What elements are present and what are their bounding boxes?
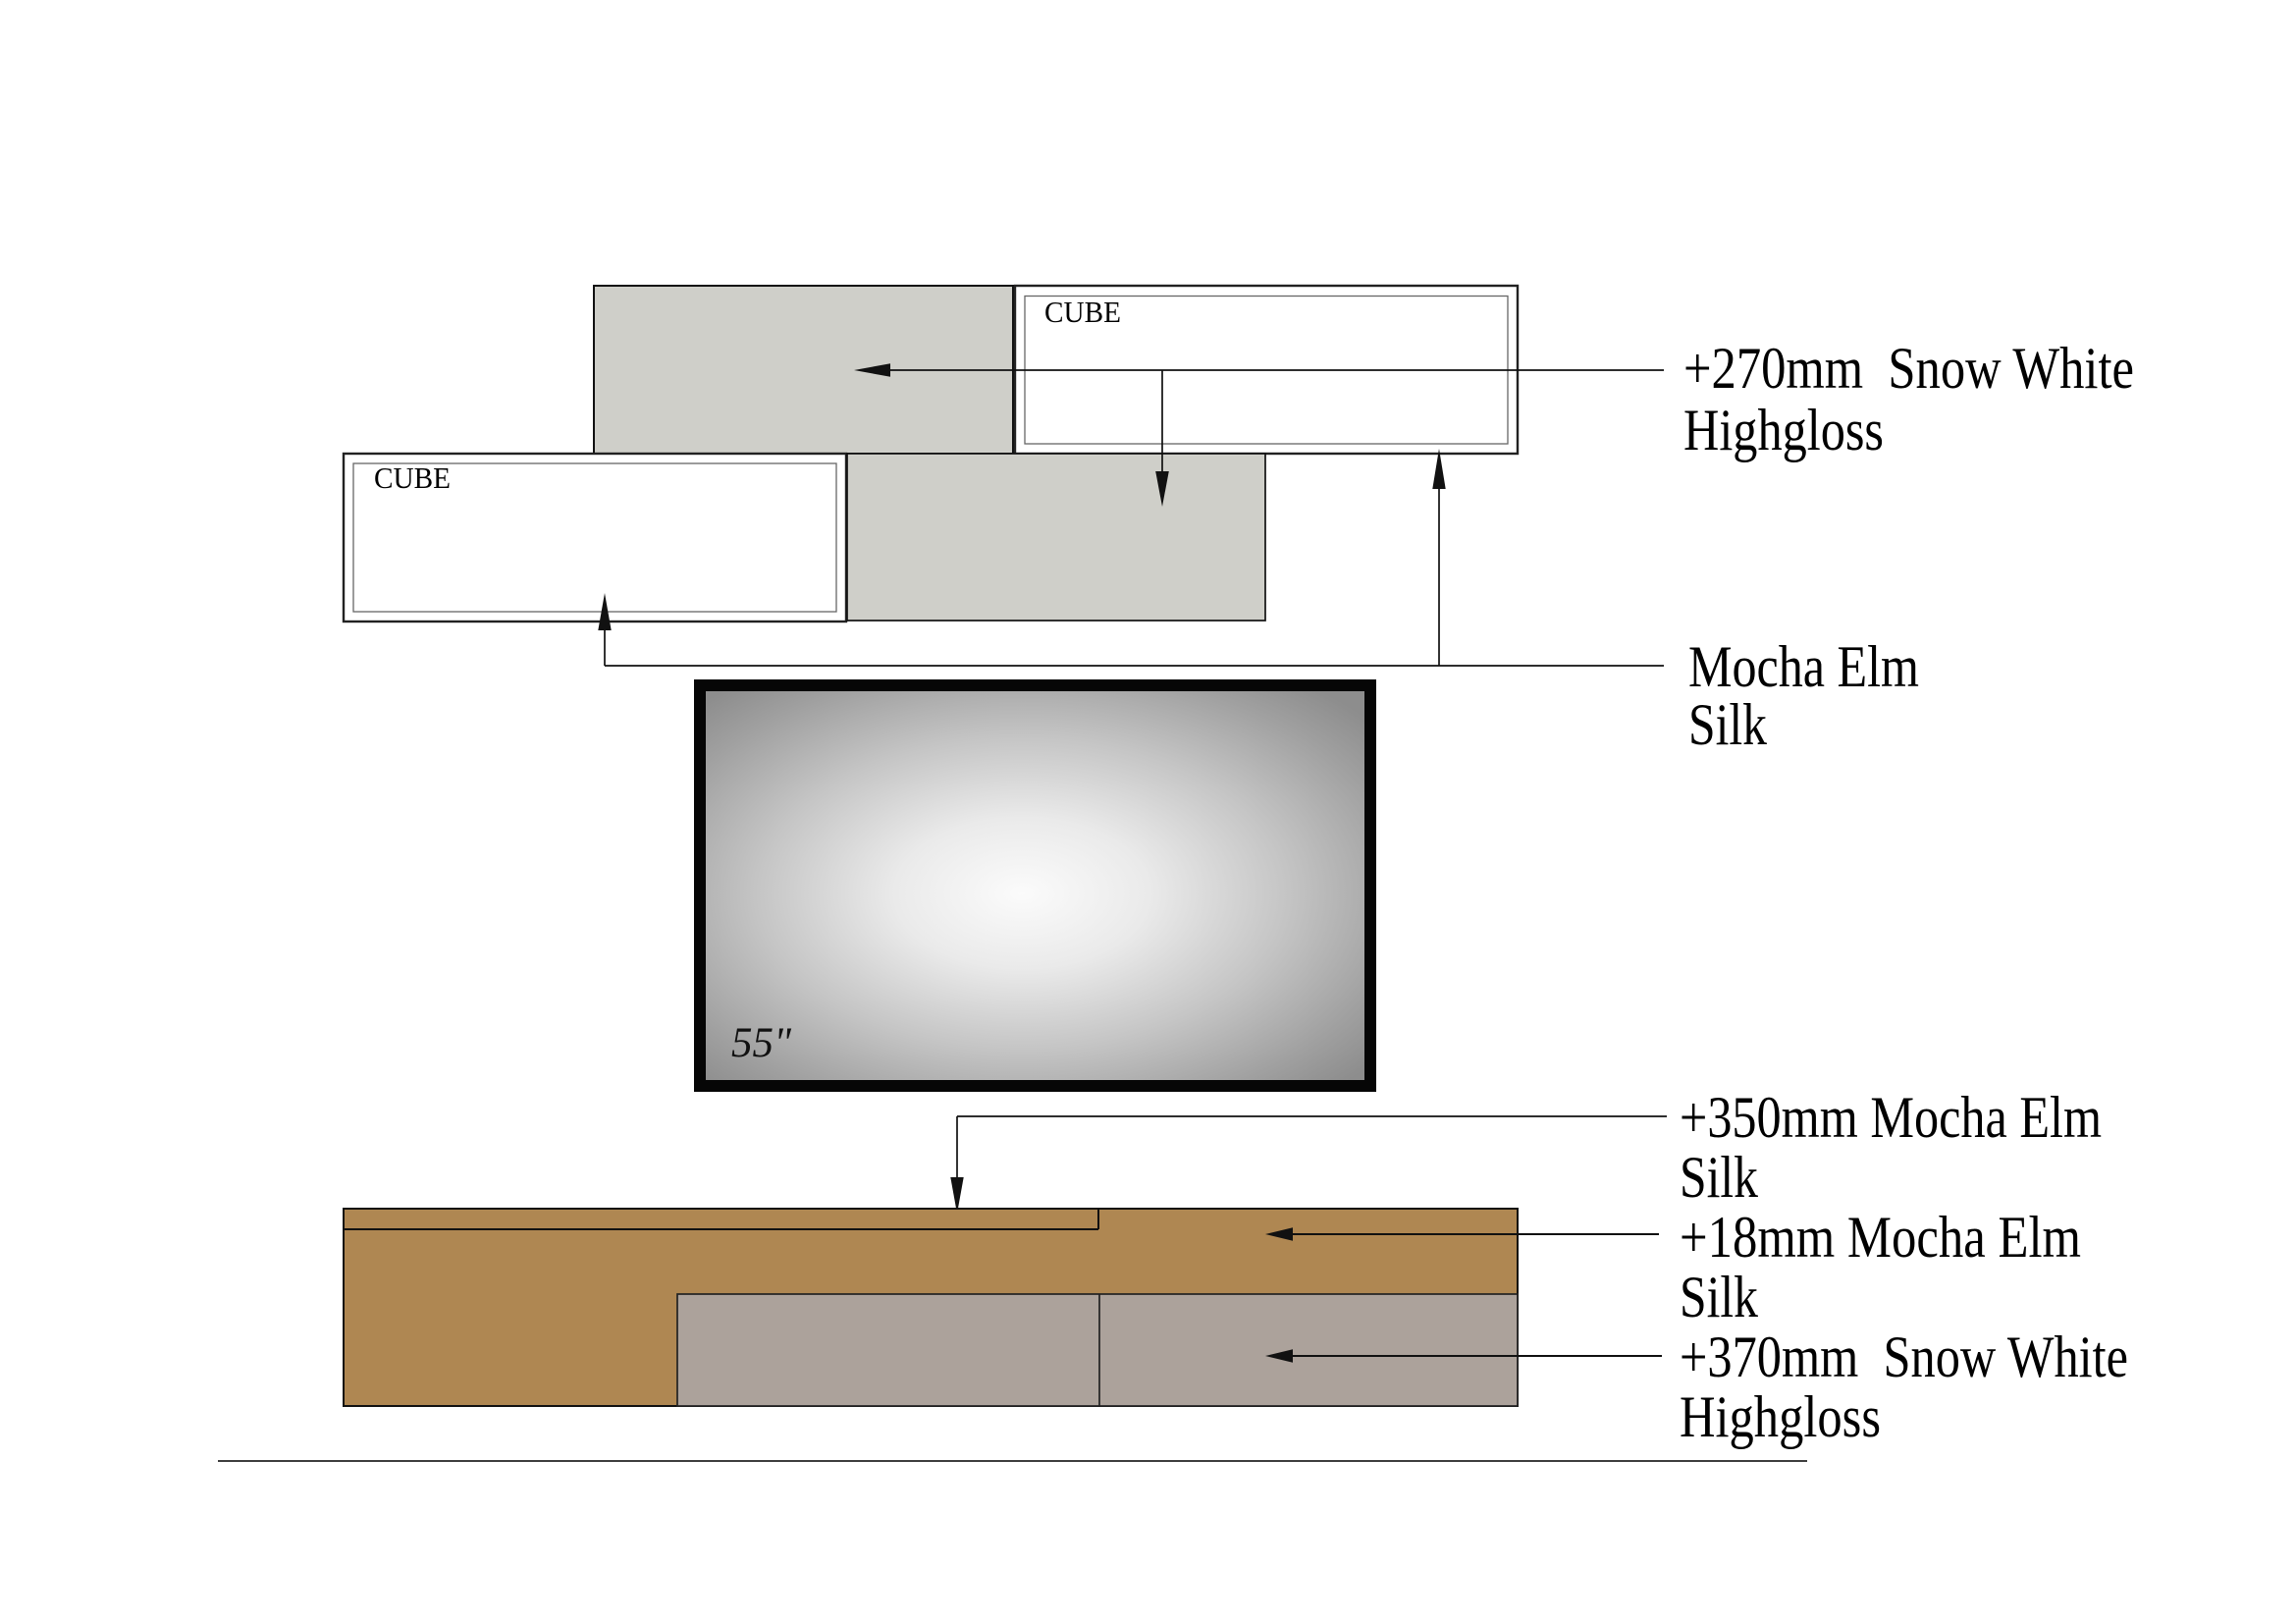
svg-text:CUBE: CUBE xyxy=(374,460,451,495)
svg-text:Silk: Silk xyxy=(1680,1145,1758,1210)
svg-text:Highgloss: Highgloss xyxy=(1680,1384,1881,1449)
svg-text:CUBE: CUBE xyxy=(1044,295,1121,329)
svg-text:+270mm Snow White: +270mm Snow White xyxy=(1683,336,2134,401)
svg-text:55": 55" xyxy=(731,1020,792,1066)
svg-text:Silk: Silk xyxy=(1688,692,1767,757)
svg-text:Silk: Silk xyxy=(1680,1265,1758,1329)
svg-text:+350mm Mocha Elm: +350mm Mocha Elm xyxy=(1680,1085,2102,1150)
svg-text:+370mm Snow White: +370mm Snow White xyxy=(1680,1325,2128,1389)
svg-text:Highgloss: Highgloss xyxy=(1683,398,1884,462)
svg-text:+18mm Mocha Elm: +18mm Mocha Elm xyxy=(1680,1205,2081,1270)
svg-text:Mocha Elm: Mocha Elm xyxy=(1688,634,1919,699)
